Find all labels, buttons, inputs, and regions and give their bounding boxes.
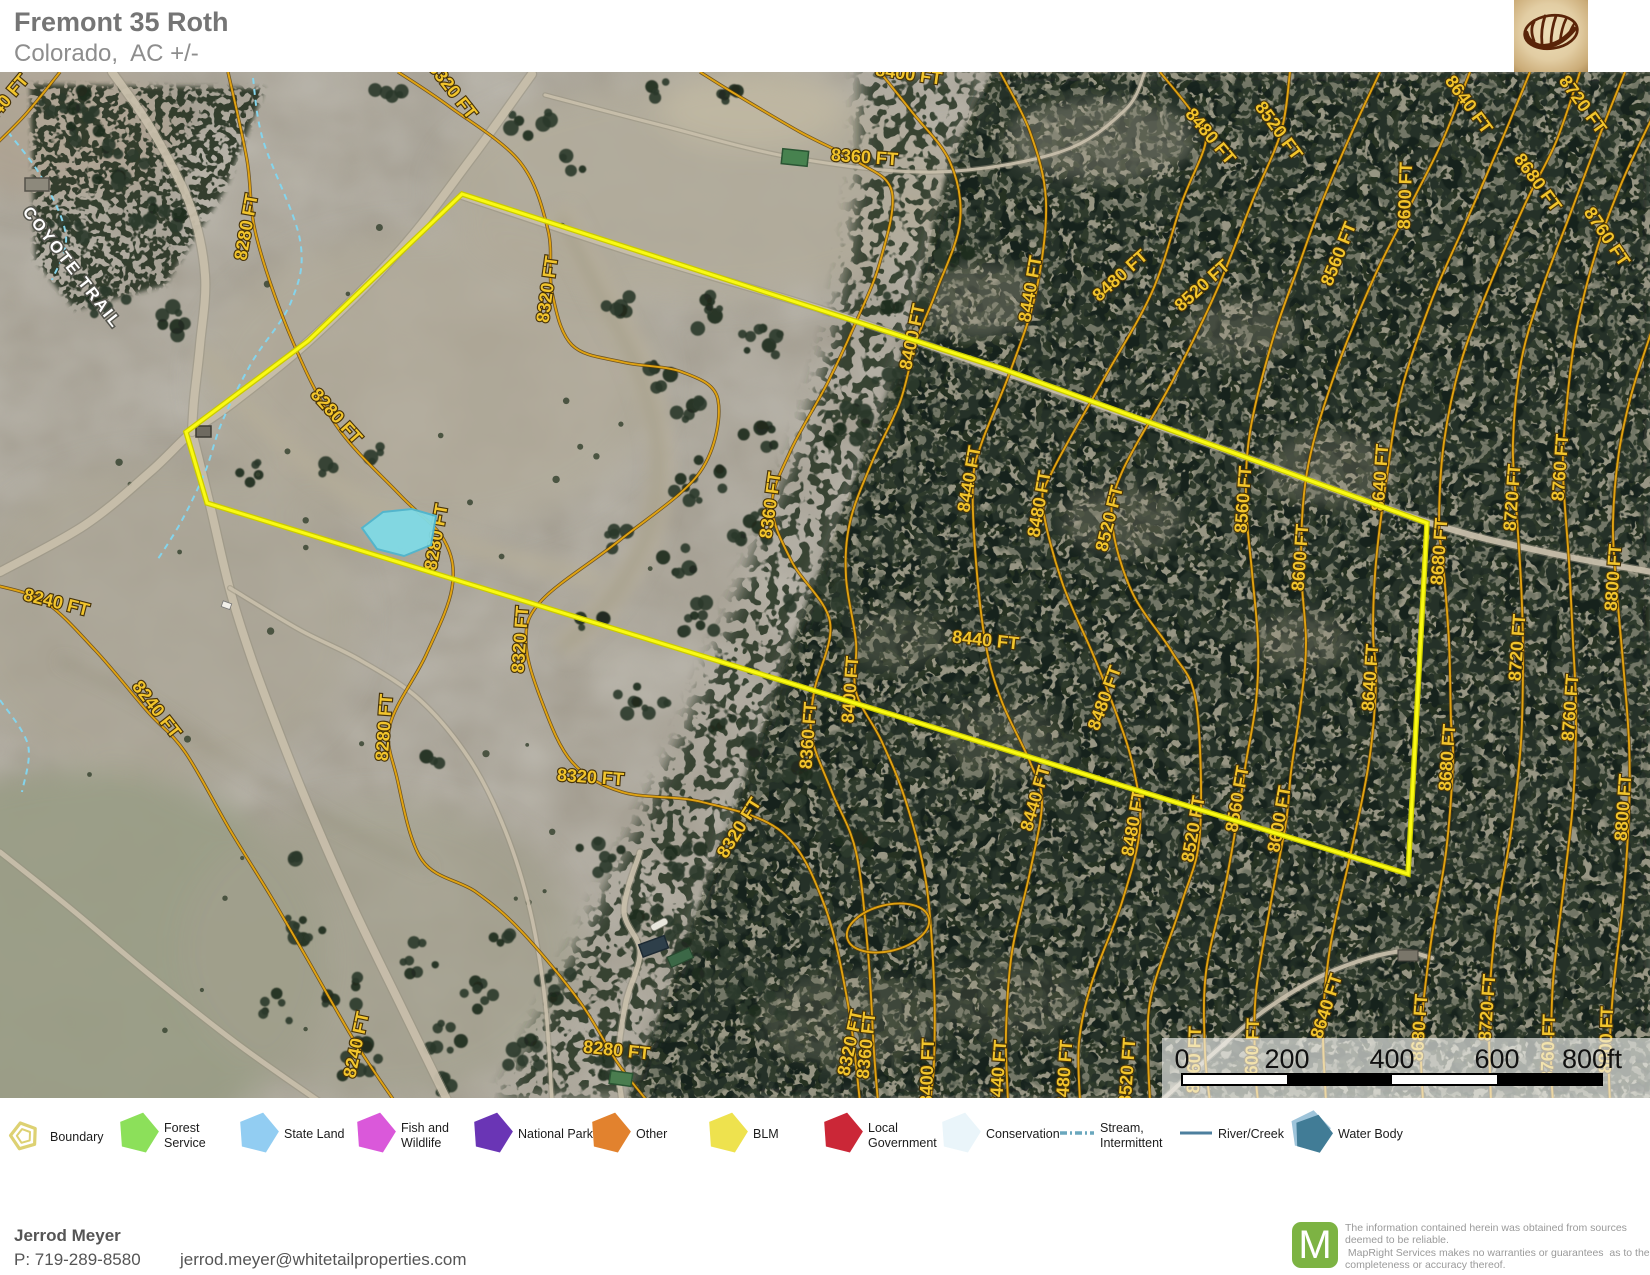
svg-text:Forest: Forest	[164, 1121, 200, 1135]
svg-text:Water Body: Water Body	[1338, 1127, 1404, 1141]
svg-text:800ft: 800ft	[1562, 1044, 1623, 1074]
svg-text:400: 400	[1369, 1044, 1414, 1074]
svg-text:Local: Local	[868, 1121, 898, 1135]
svg-text:Stream,: Stream,	[1100, 1121, 1144, 1135]
svg-text:600: 600	[1474, 1044, 1519, 1074]
svg-text:BLM: BLM	[753, 1127, 779, 1141]
svg-text:8520 FT: 8520 FT	[1115, 1037, 1140, 1098]
svg-text:Other: Other	[636, 1127, 667, 1141]
svg-text:State Land: State Land	[284, 1127, 345, 1141]
svg-text:0: 0	[1174, 1044, 1189, 1074]
svg-text:River/Creek: River/Creek	[1218, 1127, 1285, 1141]
svg-text:8400 FT: 8400 FT	[916, 1038, 938, 1098]
svg-text:8600 FT: 8600 FT	[1394, 162, 1416, 230]
svg-text:8440 FT: 8440 FT	[986, 1039, 1011, 1098]
svg-text:Fish and: Fish and	[401, 1121, 449, 1135]
svg-text:Wildlife: Wildlife	[401, 1136, 441, 1150]
svg-text:Conservation: Conservation	[986, 1127, 1060, 1141]
svg-text:Service: Service	[164, 1136, 206, 1150]
svg-text:National Park: National Park	[518, 1127, 594, 1141]
svg-text:8480 FT: 8480 FT	[1052, 1039, 1077, 1098]
svg-text:Boundary: Boundary	[50, 1130, 104, 1144]
svg-text:200: 200	[1264, 1044, 1309, 1074]
svg-text:Government: Government	[868, 1136, 937, 1150]
svg-text:Intermittent: Intermittent	[1100, 1136, 1163, 1150]
